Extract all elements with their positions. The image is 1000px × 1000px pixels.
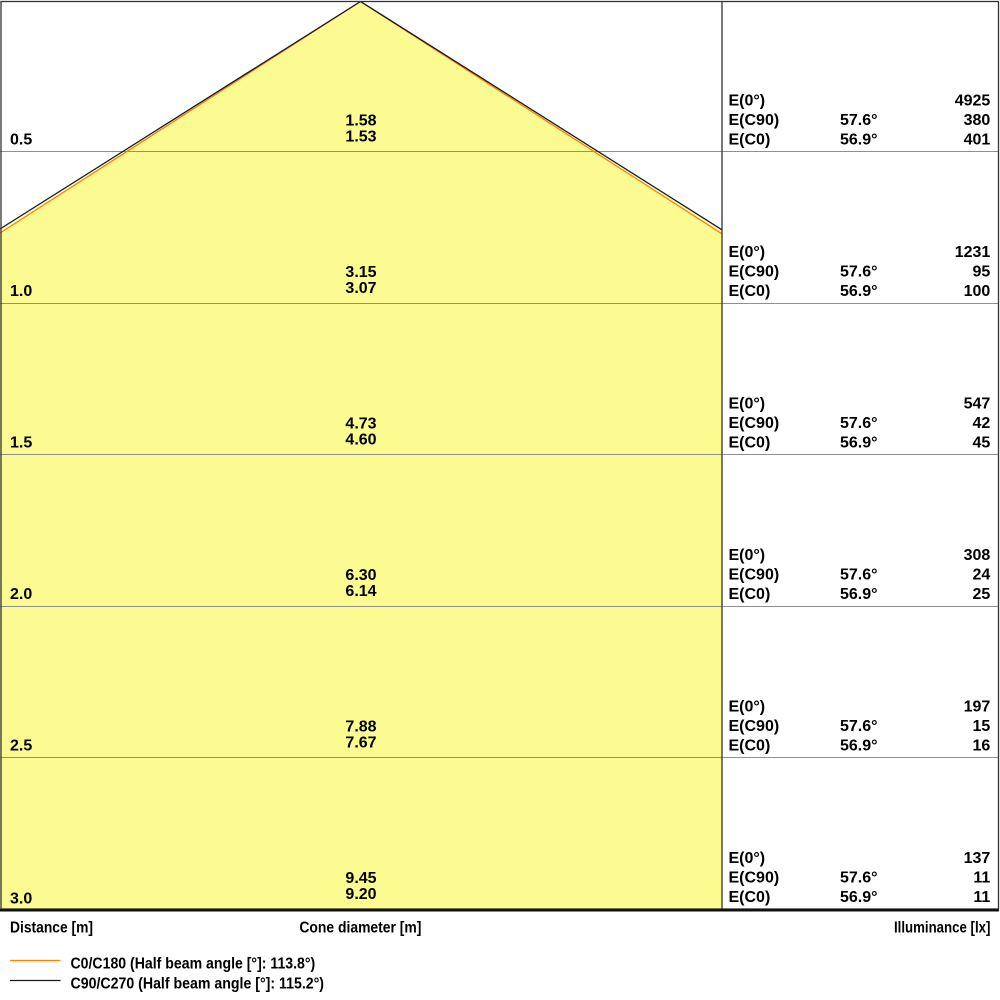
svg-text:9.45: 9.45	[345, 870, 376, 887]
svg-text:100: 100	[964, 283, 991, 300]
svg-text:E(0°): E(0°)	[729, 698, 766, 715]
svg-text:7.88: 7.88	[345, 719, 376, 736]
svg-text:57.6°: 57.6°	[840, 566, 878, 583]
svg-text:E(C90): E(C90)	[729, 415, 780, 432]
svg-text:E(C90): E(C90)	[729, 566, 780, 583]
svg-text:57.6°: 57.6°	[840, 263, 878, 280]
svg-text:C0/C180 (Half beam angle [°]:: C0/C180 (Half beam angle [°]: 113.8°)	[71, 956, 316, 973]
svg-text:E(0°): E(0°)	[729, 92, 766, 109]
svg-text:308: 308	[964, 547, 991, 564]
svg-text:1.53: 1.53	[345, 129, 376, 146]
svg-text:Distance [m]: Distance [m]	[10, 920, 93, 937]
svg-text:380: 380	[964, 112, 991, 129]
svg-text:E(C0): E(C0)	[729, 283, 771, 300]
svg-text:57.6°: 57.6°	[840, 718, 878, 735]
svg-text:16: 16	[973, 738, 991, 755]
svg-text:56.9°: 56.9°	[840, 889, 878, 906]
svg-text:0.5: 0.5	[10, 132, 32, 149]
svg-text:2.5: 2.5	[10, 738, 32, 755]
svg-text:3.15: 3.15	[345, 264, 376, 281]
svg-text:56.9°: 56.9°	[840, 738, 878, 755]
svg-text:42: 42	[973, 415, 991, 432]
svg-text:57.6°: 57.6°	[840, 415, 878, 432]
svg-text:Cone diameter [m]: Cone diameter [m]	[299, 920, 421, 937]
svg-text:E(C90): E(C90)	[729, 112, 780, 129]
svg-text:401: 401	[964, 132, 991, 149]
svg-text:547: 547	[964, 395, 991, 412]
svg-text:25: 25	[973, 586, 991, 603]
svg-text:56.9°: 56.9°	[840, 132, 878, 149]
svg-text:E(0°): E(0°)	[729, 244, 766, 261]
svg-text:11: 11	[973, 869, 990, 886]
svg-text:15: 15	[973, 718, 991, 735]
svg-text:137: 137	[964, 850, 991, 867]
svg-text:E(C90): E(C90)	[729, 263, 780, 280]
svg-text:E(C0): E(C0)	[729, 435, 771, 452]
svg-text:11: 11	[973, 889, 990, 906]
svg-text:1.58: 1.58	[345, 113, 376, 130]
svg-text:4.73: 4.73	[345, 416, 376, 433]
svg-text:9.20: 9.20	[345, 886, 376, 903]
svg-text:197: 197	[964, 698, 991, 715]
svg-text:Illuminance [lx]: Illuminance [lx]	[894, 920, 990, 937]
svg-text:1.0: 1.0	[10, 283, 32, 300]
svg-text:45: 45	[973, 435, 991, 452]
svg-text:4925: 4925	[955, 92, 991, 109]
svg-text:56.9°: 56.9°	[840, 283, 878, 300]
svg-text:3.07: 3.07	[345, 280, 376, 297]
svg-text:E(0°): E(0°)	[729, 395, 766, 412]
svg-text:56.9°: 56.9°	[840, 435, 878, 452]
svg-text:E(C0): E(C0)	[729, 132, 771, 149]
svg-text:24: 24	[973, 566, 991, 583]
svg-text:C90/C270 (Half beam angle [°]:: C90/C270 (Half beam angle [°]: 115.2°)	[71, 976, 325, 993]
svg-text:6.14: 6.14	[345, 583, 376, 600]
svg-text:E(0°): E(0°)	[729, 850, 766, 867]
svg-text:95: 95	[973, 263, 991, 280]
svg-text:E(0°): E(0°)	[729, 547, 766, 564]
svg-text:E(C0): E(C0)	[729, 586, 771, 603]
svg-text:1.5: 1.5	[10, 435, 32, 452]
svg-text:E(C90): E(C90)	[729, 869, 780, 886]
svg-text:56.9°: 56.9°	[840, 586, 878, 603]
svg-text:E(C0): E(C0)	[729, 889, 771, 906]
svg-text:7.67: 7.67	[345, 735, 376, 752]
svg-text:E(C0): E(C0)	[729, 738, 771, 755]
svg-text:1231: 1231	[955, 244, 991, 261]
svg-text:57.6°: 57.6°	[840, 112, 878, 129]
svg-text:E(C90): E(C90)	[729, 718, 780, 735]
svg-text:4.60: 4.60	[345, 432, 376, 449]
svg-text:2.0: 2.0	[10, 586, 32, 603]
svg-text:57.6°: 57.6°	[840, 869, 878, 886]
svg-text:6.30: 6.30	[345, 567, 376, 584]
svg-text:3.0: 3.0	[10, 891, 32, 908]
